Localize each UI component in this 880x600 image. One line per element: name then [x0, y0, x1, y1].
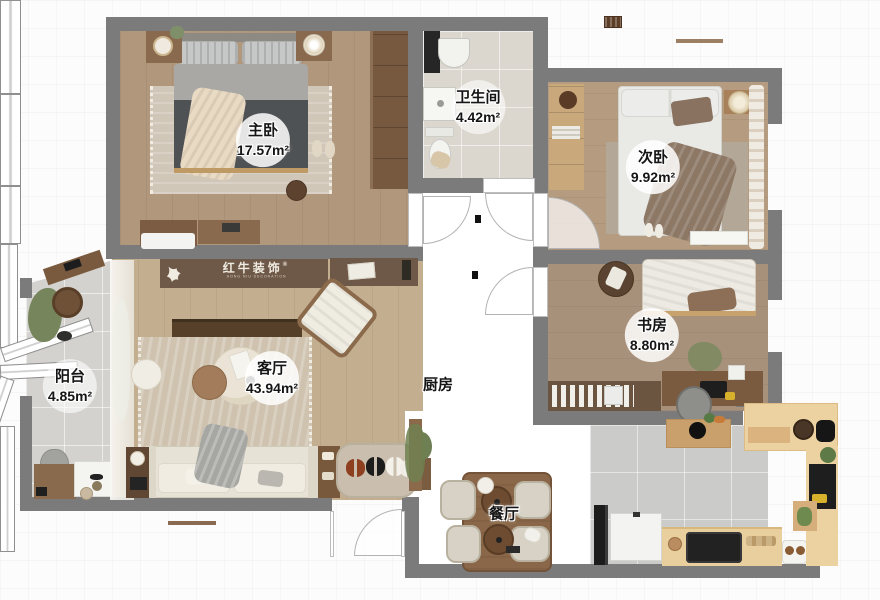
wall — [423, 178, 485, 193]
round-rug — [52, 287, 83, 318]
decor-box — [604, 16, 622, 28]
fridge — [610, 513, 662, 561]
room-name: 客厅 — [246, 359, 298, 379]
room-name: 书房 — [630, 316, 674, 336]
decor-dot — [633, 512, 640, 517]
stove — [686, 532, 742, 563]
rattan-lamp — [728, 91, 751, 114]
table-lamp — [153, 36, 173, 56]
sofa-armrest — [308, 446, 318, 498]
vegetables — [797, 507, 812, 526]
room-label-bedroom2: 次卧 9.92m² — [631, 148, 675, 186]
decor-item — [92, 481, 102, 491]
door-frame — [408, 193, 423, 247]
wall — [768, 82, 782, 124]
spice-jars — [746, 536, 776, 546]
brand-banner: 红牛装饰® HONG NIU DECORATION — [160, 259, 328, 288]
slipper — [645, 223, 653, 237]
room-label-living: 客厅 43.94m² — [246, 359, 298, 397]
coffee-table-small — [192, 365, 227, 400]
room-label-bathroom: 卫生间 4.42m² — [455, 88, 500, 126]
stool — [689, 422, 706, 439]
dining-chair — [446, 525, 481, 563]
slipper — [312, 140, 322, 157]
room-label-master: 主卧 17.57m² — [237, 121, 289, 159]
entry-door-jamb — [330, 511, 334, 557]
decor-item — [728, 365, 745, 380]
room-area: 4.42m² — [455, 108, 500, 126]
door-frame — [533, 193, 548, 247]
table-lamp — [303, 34, 325, 56]
wall — [20, 278, 32, 298]
decor-item — [725, 392, 735, 400]
decor-item — [36, 487, 47, 496]
vase-decor — [402, 260, 411, 280]
registered-mark: ® — [283, 262, 290, 268]
plant-sketch — [112, 300, 130, 420]
counter-step — [748, 427, 790, 443]
book-decor — [347, 262, 375, 280]
bar-stool — [793, 419, 814, 440]
teapot — [477, 477, 494, 494]
pillow — [257, 470, 284, 488]
slipper — [655, 224, 663, 238]
decor-item — [714, 416, 725, 423]
floor-mat — [690, 231, 748, 245]
toilet-tank — [425, 127, 454, 137]
room-area: 43.94m² — [246, 379, 298, 397]
room-name: 阳台 — [48, 367, 92, 387]
wall — [768, 255, 782, 300]
food-item — [785, 546, 794, 555]
wall — [408, 31, 423, 193]
room-name: 次卧 — [631, 148, 675, 168]
brand-name: 红牛装饰® — [223, 262, 290, 274]
pouf — [131, 359, 162, 390]
window-kitchen-corner — [0, 376, 15, 426]
decor-line — [168, 521, 216, 525]
wall — [540, 68, 782, 82]
food-item — [796, 546, 805, 555]
pillow — [178, 41, 238, 65]
decor-dot — [496, 537, 502, 543]
room-label-study: 书房 8.80m² — [630, 316, 674, 354]
room-area: 4.85m² — [48, 387, 92, 405]
decor-item — [322, 452, 334, 460]
room-label-dining: 餐厅 — [489, 504, 519, 524]
door-stopper-icon — [472, 271, 478, 279]
window — [0, 94, 21, 186]
window — [0, 186, 21, 244]
room-name: 厨房 — [423, 375, 453, 395]
bar-stool — [816, 420, 835, 442]
plant-decor — [170, 26, 184, 39]
room-area: 9.92m² — [631, 168, 675, 186]
decor-item — [90, 474, 103, 480]
decor-line — [676, 39, 723, 43]
plant — [688, 342, 722, 372]
wall — [20, 497, 332, 511]
plant — [820, 447, 836, 463]
cloth — [141, 233, 195, 249]
room-area: 8.80m² — [630, 336, 674, 354]
decor-bowl — [57, 331, 72, 341]
printer — [604, 386, 623, 405]
decor-item — [80, 487, 93, 500]
hat-decor — [559, 91, 577, 109]
shower-head — [438, 38, 470, 68]
room-label-kitchen: 厨房 — [423, 375, 453, 395]
curtain — [749, 85, 764, 249]
decor-item — [506, 546, 520, 553]
window — [0, 426, 15, 552]
wall — [20, 396, 32, 500]
stool — [286, 180, 307, 201]
bed-frame-foot — [174, 168, 308, 173]
kitchen-divider-panel — [594, 505, 608, 565]
faucet — [437, 100, 444, 107]
wall — [533, 315, 548, 415]
room-name: 主卧 — [237, 121, 289, 141]
table-lamp — [130, 451, 145, 466]
window — [0, 244, 18, 348]
tv-cabinet — [172, 319, 302, 337]
slipper — [325, 141, 335, 158]
bull-logo-icon — [165, 265, 185, 283]
decor-item — [222, 223, 240, 232]
door-frame — [483, 178, 535, 193]
brand-subtitle: HONG NIU DECORATION — [227, 274, 287, 279]
decor-item — [322, 472, 334, 480]
plant-vine — [405, 424, 425, 482]
dining-chair — [514, 481, 551, 519]
wall — [533, 82, 548, 193]
decor-box — [130, 477, 147, 490]
floor-plan: 红牛装饰® HONG NIU DECORATION — [0, 0, 880, 600]
door-stopper-icon — [475, 215, 481, 223]
sink-bowl — [668, 537, 682, 551]
books — [552, 126, 580, 139]
window — [0, 0, 21, 94]
slippers-pair — [366, 457, 385, 476]
door-arc-entry — [354, 509, 402, 556]
pillow — [242, 41, 302, 65]
slippers-pair — [346, 459, 365, 477]
room-name: 餐厅 — [489, 504, 519, 524]
dining-chair — [440, 480, 476, 520]
wardrobe — [370, 31, 408, 189]
room-area: 17.57m² — [237, 141, 289, 159]
door-frame — [533, 267, 548, 317]
room-label-balcony: 阳台 4.85m² — [48, 367, 92, 405]
room-name: 卫生间 — [455, 88, 500, 108]
wall — [106, 17, 120, 245]
